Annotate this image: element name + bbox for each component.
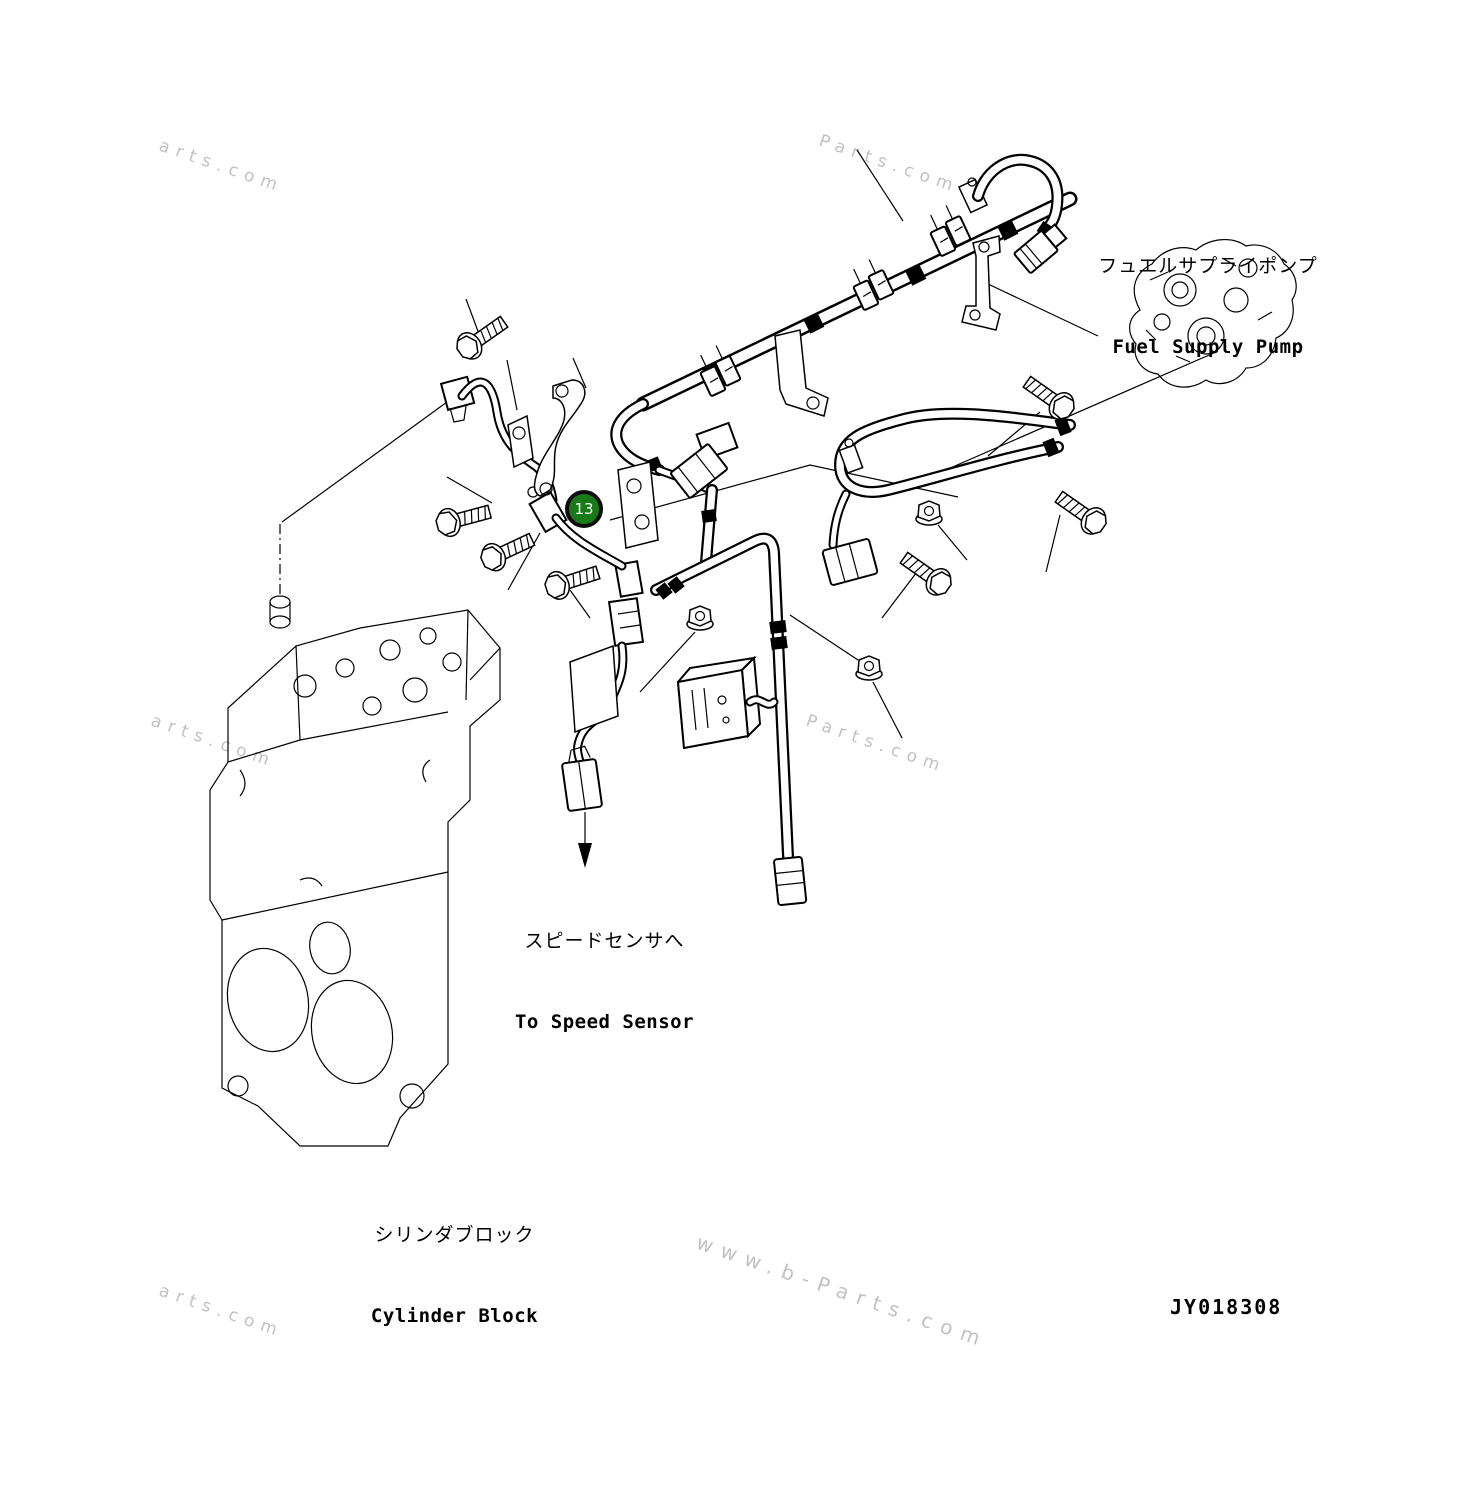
flange-nut bbox=[687, 606, 713, 630]
callout-number: 13 bbox=[574, 500, 593, 518]
wiring-harness-drawing bbox=[441, 160, 1070, 906]
fuel-pump-label-jp: フュエルサプライポンプ bbox=[1090, 253, 1326, 280]
flange-nut bbox=[856, 656, 882, 680]
watermark: arts.com bbox=[148, 711, 278, 772]
callout-badge-13[interactable]: 13 bbox=[565, 490, 603, 528]
speed-sensor-label: スピードセンサへ To Speed Sensor bbox=[492, 874, 717, 1063]
flange-nut bbox=[916, 501, 942, 525]
watermark: Parts.com bbox=[803, 711, 949, 778]
speed-sensor-label-en: To Speed Sensor bbox=[492, 1009, 717, 1036]
fuel-pump-label-en: Fuel Supply Pump bbox=[1090, 334, 1326, 361]
down-arrow bbox=[578, 843, 592, 868]
cylinder-block-drawing bbox=[210, 522, 500, 1146]
speed-sensor-branch bbox=[560, 561, 643, 868]
watermark: arts.com bbox=[156, 136, 286, 197]
fuel-pump-label: フュエルサプライポンプ Fuel Supply Pump bbox=[1090, 199, 1326, 388]
leader-lines bbox=[282, 150, 1216, 738]
watermark: arts.com bbox=[156, 1281, 286, 1342]
cylinder-block-label-en: Cylinder Block bbox=[352, 1303, 557, 1330]
bolt bbox=[477, 527, 538, 575]
bolt bbox=[434, 498, 493, 539]
bolt bbox=[1051, 485, 1111, 539]
bolt bbox=[542, 559, 602, 602]
speed-sensor-label-jp: スピードセンサへ bbox=[492, 928, 717, 955]
ecm-connector bbox=[678, 658, 774, 748]
bolt bbox=[896, 546, 956, 600]
watermarks: arts.com Parts.com arts.com Parts.com ww… bbox=[148, 131, 992, 1353]
watermark: Parts.com bbox=[816, 131, 962, 198]
watermark: www.b-Parts.com bbox=[693, 1230, 992, 1353]
cylinder-block-label-jp: シリンダブロック bbox=[352, 1222, 557, 1249]
bolt bbox=[452, 310, 512, 364]
cylinder-block-label: シリンダブロック Cylinder Block bbox=[352, 1168, 557, 1357]
parts-diagram-page: arts.com Parts.com arts.com Parts.com ww… bbox=[0, 0, 1466, 1499]
drawing-number: JY018308 bbox=[1170, 1295, 1282, 1319]
